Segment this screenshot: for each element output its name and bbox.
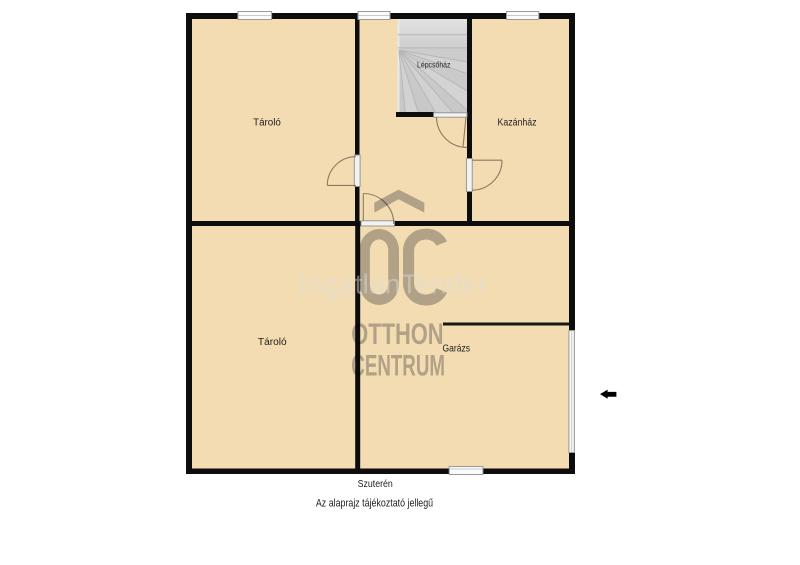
svg-text:Szuterén: Szuterén bbox=[358, 478, 393, 490]
svg-text:OTTHON: OTTHON bbox=[351, 318, 443, 351]
svg-text:Tároló: Tároló bbox=[253, 117, 281, 128]
svg-text:Lépcsőház: Lépcsőház bbox=[417, 61, 451, 70]
svg-text:CENTRUM: CENTRUM bbox=[351, 349, 445, 382]
svg-text:Kazánház: Kazánház bbox=[498, 117, 537, 128]
svg-text:Garázs: Garázs bbox=[443, 343, 471, 354]
svg-text:Tároló: Tároló bbox=[258, 337, 287, 348]
svg-text:Az alaprajz tájékoztató jelleg: Az alaprajz tájékoztató jellegű bbox=[316, 498, 433, 510]
svg-text:IngatlanTender: IngatlanTender bbox=[299, 269, 488, 300]
